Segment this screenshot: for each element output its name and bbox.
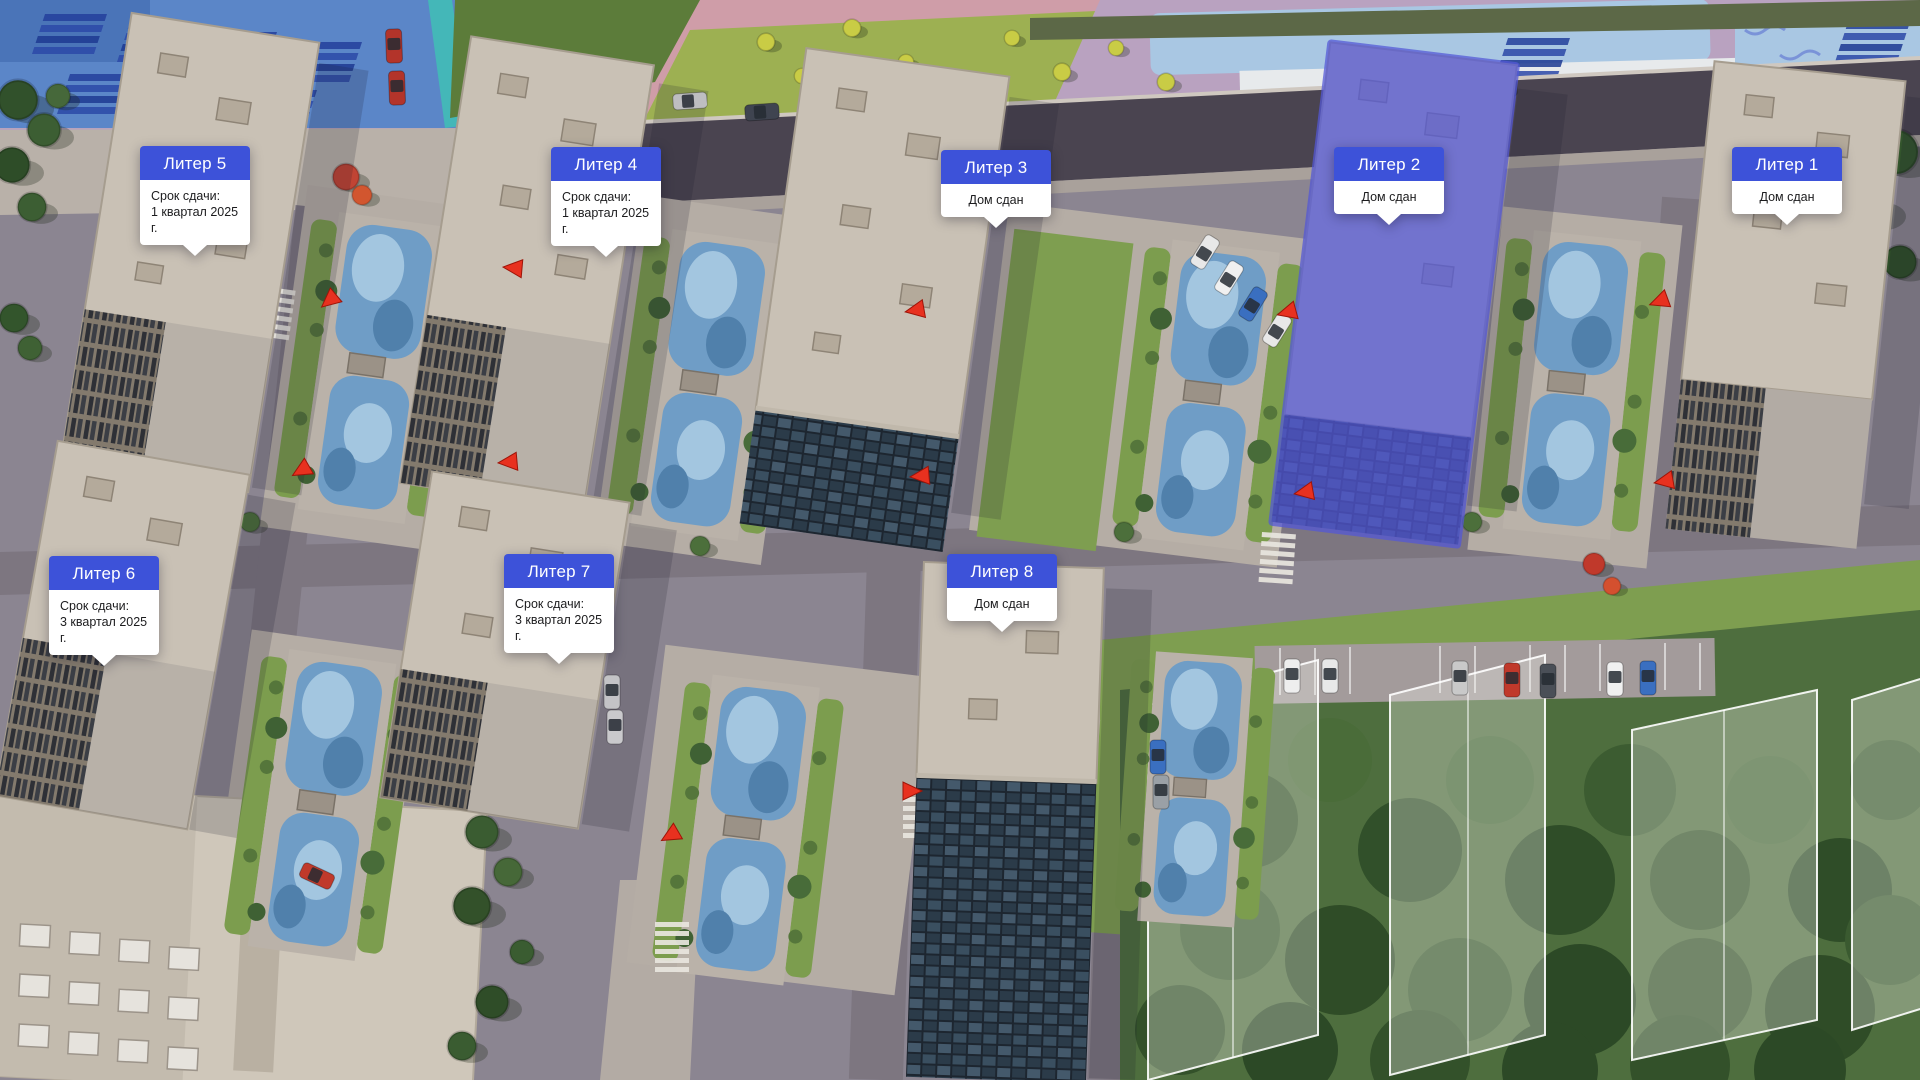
building-label-liter-7[interactable]: Литер 7 Срок сдачи: 3 квартал 2025 г. xyxy=(504,554,614,664)
label-tail-icon xyxy=(1377,214,1401,225)
label-status: Дом сдан xyxy=(941,184,1051,217)
label-status: Срок сдачи: 3 квартал 2025 г. xyxy=(49,590,159,655)
label-title: Литер 8 xyxy=(947,554,1057,588)
building-label-liter-1[interactable]: Литер 1 Дом сдан xyxy=(1732,147,1842,225)
label-title: Литер 4 xyxy=(551,147,661,181)
building-label-liter-5[interactable]: Литер 5 Срок сдачи: 1 квартал 2025 г. xyxy=(140,146,250,256)
label-tail-icon xyxy=(1775,214,1799,225)
label-status: Срок сдачи: 1 квартал 2025 г. xyxy=(140,180,250,245)
label-title: Литер 6 xyxy=(49,556,159,590)
label-status: Срок сдачи: 1 квартал 2025 г. xyxy=(551,181,661,246)
label-status: Срок сдачи: 3 квартал 2025 г. xyxy=(504,588,614,653)
masterplan-canvas: Литер 5 Срок сдачи: 1 квартал 2025 г. Ли… xyxy=(0,0,1920,1080)
label-title: Литер 7 xyxy=(504,554,614,588)
building-label-liter-3[interactable]: Литер 3 Дом сдан xyxy=(941,150,1051,228)
label-status: Дом сдан xyxy=(1732,181,1842,214)
label-tail-icon xyxy=(984,217,1008,228)
label-status: Дом сдан xyxy=(1334,181,1444,214)
label-tail-icon xyxy=(547,653,571,664)
building-label-liter-6[interactable]: Литер 6 Срок сдачи: 3 квартал 2025 г. xyxy=(49,556,159,666)
label-tail-icon xyxy=(594,246,618,257)
label-title: Литер 2 xyxy=(1334,147,1444,181)
label-title: Литер 3 xyxy=(941,150,1051,184)
building-liter-8[interactable] xyxy=(906,562,1153,1080)
label-tail-icon xyxy=(92,655,116,666)
building-label-liter-8[interactable]: Литер 8 Дом сдан xyxy=(947,554,1057,632)
label-status: Дом сдан xyxy=(947,588,1057,621)
label-tail-icon xyxy=(183,245,207,256)
label-tail-icon xyxy=(990,621,1014,632)
label-title: Литер 5 xyxy=(140,146,250,180)
building-label-liter-2[interactable]: Литер 2 Дом сдан xyxy=(1334,147,1444,225)
building-label-liter-4[interactable]: Литер 4 Срок сдачи: 1 квартал 2025 г. xyxy=(551,147,661,257)
label-title: Литер 1 xyxy=(1732,147,1842,181)
